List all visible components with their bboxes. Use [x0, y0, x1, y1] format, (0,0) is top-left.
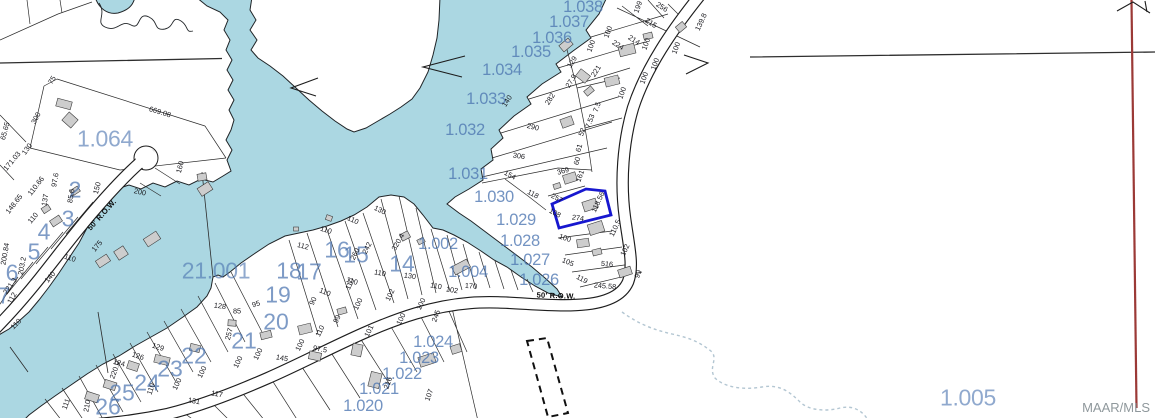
plat-map: 1.06421.0011.0051.0381.0371.0361.0351.03…: [0, 0, 1155, 418]
parcel-number-label: 1.035: [511, 44, 551, 61]
lot-number-label: 21: [231, 330, 257, 353]
dimension-label: 516: [601, 260, 614, 269]
dimension-label: 95: [251, 299, 261, 308]
dimension-label: 97.5: [312, 344, 327, 354]
parcel-number-label: 1.020: [343, 398, 383, 415]
dimension-label: 102: [445, 285, 458, 294]
row-label: 50' R.O.W.: [536, 292, 575, 301]
dimension-label: 137: [40, 193, 49, 206]
dimension-label: 130: [403, 272, 416, 281]
lot-number-label: 26: [95, 396, 121, 418]
parcel-number-label: 1.064: [77, 128, 133, 151]
parcel-number-label: 1.004: [448, 264, 488, 281]
parcel-number-label: 1.028: [500, 233, 540, 250]
cul-de-sac-fill: [136, 148, 157, 169]
parcel-number-label: 1.005: [940, 387, 996, 410]
dimension-label: 210: [82, 399, 91, 412]
parcel-number-label: 1.026: [519, 272, 559, 289]
parcel-number-label: 1.027: [510, 252, 550, 269]
mls-watermark: MAAR/MLS: [1082, 400, 1150, 415]
parcel-number-label: 1.034: [482, 62, 522, 79]
dimension-label: 110: [374, 268, 387, 277]
dimension-label: 306: [512, 152, 525, 161]
dimension-label: 117: [211, 389, 224, 398]
dimension-label: 274: [571, 214, 584, 223]
dimension-label: 200: [133, 187, 146, 197]
lot-number-label: 16: [324, 239, 350, 262]
dimension-label: 85.6: [66, 188, 76, 203]
lot-number-label: 18: [276, 260, 302, 283]
parcel-number-label: 1.030: [474, 189, 514, 206]
dimension-label: 131: [187, 396, 200, 405]
dimension-label: 85: [233, 307, 241, 314]
dimension-label: 128: [213, 302, 226, 311]
parcel-number-label: 1.002: [418, 236, 458, 253]
dimension-label: 112: [296, 241, 309, 251]
dimension-label: 145: [275, 353, 288, 362]
parcel-number-label: 21.001: [182, 260, 251, 283]
parcel-number-label: 1.033: [466, 91, 506, 108]
parcel-number-label: 1.031: [448, 166, 488, 183]
lot-number-label: 19: [265, 284, 291, 307]
lot-number-label: 5: [28, 241, 41, 264]
dimension-label: 61: [574, 143, 583, 153]
parcel-number-label: 1.032: [445, 122, 485, 139]
parcel-number-label: 1.029: [496, 212, 536, 229]
lot-number-label: 23: [157, 358, 183, 381]
dimension-label: 170: [465, 282, 478, 290]
dimension-label: 110: [430, 281, 443, 290]
dimension-label: 97.6: [50, 172, 60, 187]
dimension-label: 60: [572, 156, 581, 166]
parcel-number-label: 1.021: [359, 381, 399, 398]
dimension-label: 290: [526, 122, 540, 132]
lot-number-label: 3: [62, 208, 75, 231]
lot-number-label: 20: [263, 311, 289, 334]
lot-number-label: 22: [181, 345, 207, 368]
dimension-label: 245.58: [594, 281, 617, 290]
